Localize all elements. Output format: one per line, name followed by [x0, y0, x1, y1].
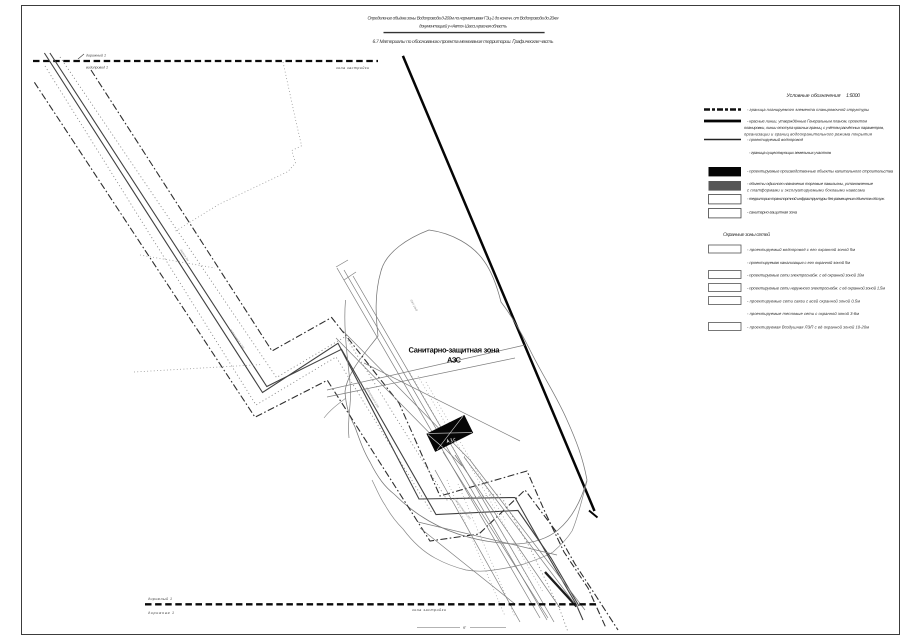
svg-text:зона застройки: зона застройки	[411, 608, 446, 612]
svg-text:- граница существующих земельн: - граница существующих земельных участко…	[749, 150, 832, 155]
svg-text:- проектируемая Воздушная ЛЭП: - проектируемая Воздушная ЛЭП с её охран…	[747, 324, 869, 329]
svg-text:- проектируемые производственн: - проектируемые производственные объекты…	[747, 169, 894, 174]
svg-text:ЛЭП 10кВ: ЛЭП 10кВ	[409, 298, 419, 312]
svg-text:организации и границ водоохран: организации и границ водоохранительного …	[744, 131, 873, 136]
svg-text:- объекты офисного назначения: - объекты офисного назначения торговые п…	[747, 181, 874, 186]
svg-text:Условные обозначения: Условные обозначения	[787, 93, 841, 99]
svg-text:- проектируемый водопровод: - проектируемый водопровод	[747, 137, 804, 142]
svg-text:АЗС: АЗС	[447, 356, 462, 365]
svg-text:дорожный 1: дорожный 1	[86, 54, 106, 58]
svg-text:- проектируемый водопровод с е: - проектируемый водопровод с его охранно…	[747, 247, 855, 252]
svg-text:водопровод 1: водопровод 1	[86, 65, 108, 69]
svg-text:дорожная 1: дорожная 1	[148, 611, 174, 615]
svg-text:планировки, линии отступа крас: планировки, линии отступа красных границ…	[744, 125, 884, 130]
svg-text:6.7 Материалы по обоснованию п: 6.7 Материалы по обоснованию проекта меж…	[373, 39, 554, 45]
svg-text:- проектируемые сети электросн: - проектируемые сети электроснабж. с её …	[747, 273, 864, 278]
svg-text:Определение объёма зоны Водопр: Определение объёма зоны Водопровода д-20…	[368, 16, 560, 21]
svg-text:документацией у «Авто» Шасси к: документацией у «Авто» Шасси красная обл…	[419, 24, 508, 29]
svg-text:Санитарно-защитная зона: Санитарно-защитная зона	[409, 346, 501, 355]
svg-text:с платформами и эксплуатируемы: с платформами и эксплуатируемыми боковым…	[747, 188, 866, 193]
svg-text:- проектируемые сети наружного: - проектируемые сети наружного электросн…	[747, 286, 885, 291]
svg-text:- проектируемые тепловые сети: - проектируемые тепловые сети с охранной…	[747, 311, 859, 316]
svg-text:- граница планируемого элемент: - граница планируемого элемента планиров…	[747, 107, 869, 112]
svg-text:1:5000: 1:5000	[846, 93, 860, 99]
svg-text:б': б'	[463, 625, 466, 630]
svg-text:- красные линии, утверждённые: - красные линии, утверждённые Генеральны…	[747, 119, 867, 124]
svg-text:водопровод д.200: водопровод д.200	[229, 328, 245, 350]
svg-text:- санитарно-защитная зона: - санитарно-защитная зона	[747, 210, 798, 215]
svg-text:Охранные зоны сетей: Охранные зоны сетей	[723, 232, 770, 238]
svg-text:- территория транспортной инфр: - территория транспортной инфраструктуры…	[747, 196, 885, 201]
svg-text:водопровод д.150: водопровод д.150	[365, 387, 380, 409]
svg-text:зона застройки: зона застройки	[335, 66, 369, 70]
svg-text:- проектируемая канализация с: - проектируемая канализация с его охранн…	[747, 260, 850, 265]
svg-text:дорожный 1: дорожный 1	[148, 597, 172, 601]
svg-text:- проектируемые сети связи с в: - проектируемые сети связи с всей охранн…	[747, 298, 860, 303]
